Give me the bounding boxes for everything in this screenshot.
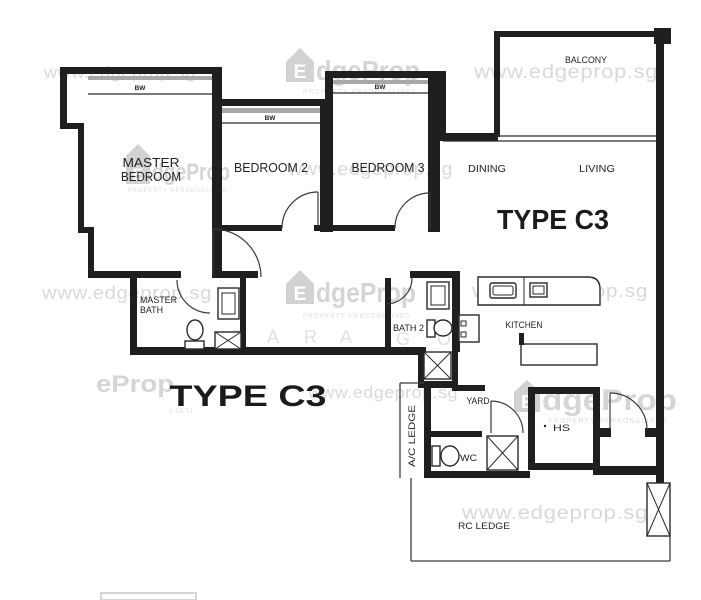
bath2-fixtures xyxy=(424,282,452,379)
shower-area xyxy=(424,352,451,379)
watermark-url: www.edgeprop.sg xyxy=(473,62,658,83)
rc-ledge-hatch xyxy=(647,483,670,536)
label-ac-ledge: A/C LEDGE xyxy=(407,405,417,467)
washer-unit xyxy=(459,315,479,342)
label-yard: YARD xyxy=(467,396,490,407)
kitchen-sink xyxy=(490,283,516,298)
label-kitchen: KITCHEN xyxy=(506,320,543,331)
label-dining: DINING xyxy=(468,163,506,175)
unit-type-label: TYPE C3 xyxy=(497,204,609,235)
unit-type-label: TYPE C3 xyxy=(170,380,327,413)
hs-door-dot xyxy=(544,425,546,427)
edgeprop-logo-e: E xyxy=(294,284,307,305)
label-bedroom3: BEDROOM 3 xyxy=(352,160,425,175)
edgeprop-tagline: PROPERTY PERSONALISED xyxy=(303,87,418,96)
label-master-bath: BATH xyxy=(140,305,163,316)
toilet-icon xyxy=(185,320,204,349)
watermark-url: www.edgeprop.sg xyxy=(41,283,212,303)
watermark-letter: A xyxy=(340,327,352,347)
watermark-letter: A xyxy=(267,327,279,347)
floor-plan-image: www.edgeprop.sg www.edgeprop.sg www.edge… xyxy=(0,0,701,600)
floor-plan-svg: www.edgeprop.sg www.edgeprop.sg www.edge… xyxy=(0,0,701,600)
label-hs: HS xyxy=(553,423,570,434)
cropped-scale-bar xyxy=(101,593,196,600)
kitchen-cabinet xyxy=(521,344,597,365)
edgeprop-logo-text: dgeProp xyxy=(316,277,416,308)
label-bay-window: BW xyxy=(135,85,147,92)
edgeprop-logo-e: E xyxy=(294,62,307,83)
label-master-bedroom: BEDROOM xyxy=(121,169,181,184)
shower-area xyxy=(215,332,241,349)
label-bay-window: BW xyxy=(375,84,387,91)
label-balcony: BALCONY xyxy=(565,55,607,65)
label-master-bedroom: MASTER xyxy=(123,155,180,170)
toilet-icon xyxy=(432,446,459,466)
label-bath2: BATH 2 xyxy=(393,323,424,334)
label-living: LIVING xyxy=(579,163,615,175)
floor-trap xyxy=(487,436,518,470)
label-bay-window: BW xyxy=(265,115,277,122)
edgeprop-logo: E dgeProp PROPERTY PERSONALISED xyxy=(286,270,416,320)
kitchen-stove xyxy=(530,283,547,297)
label-bedroom2: BEDROOM 2 xyxy=(234,160,308,175)
label-rc-ledge: RC LEDGE xyxy=(458,521,510,532)
edgeprop-logo-text: eProp xyxy=(96,371,174,398)
watermark-letter: R xyxy=(304,327,317,347)
edgeprop-tagline: PROPERTY PERSONALISED xyxy=(303,311,411,320)
toilet-icon xyxy=(427,320,452,337)
label-wc: WC xyxy=(460,453,478,463)
